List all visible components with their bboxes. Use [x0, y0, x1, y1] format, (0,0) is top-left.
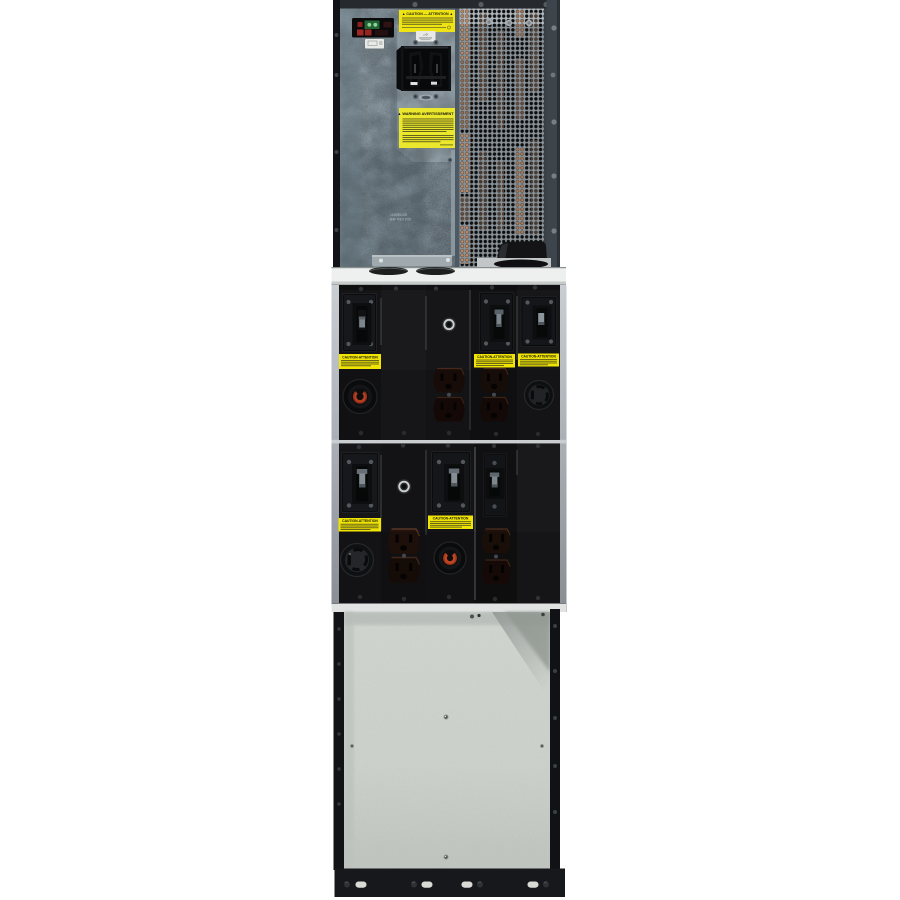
svg-text:▲ WARNING AVERTISSEMENT ▲: ▲ WARNING AVERTISSEMENT ▲ — [398, 112, 459, 116]
svg-text:CAUTION-ATTENTION: CAUTION-ATTENTION — [342, 355, 378, 359]
svg-text:CAUTION-ATTENTION: CAUTION-ATTENTION — [342, 519, 378, 523]
svg-text:▲ CAUTION — ATTENTION ▲: ▲ CAUTION — ATTENTION ▲ — [402, 12, 453, 16]
svg-text:115085108: 115085108 — [390, 213, 407, 217]
svg-text:△⚙: △⚙ — [423, 33, 428, 37]
svg-text:CAUTION-ATTENTION: CAUTION-ATTENTION — [477, 355, 512, 359]
svg-text:B4F REV F20: B4F REV F20 — [390, 218, 411, 222]
svg-text:CAUTION-ATTENTION: CAUTION-ATTENTION — [433, 517, 469, 521]
svg-text:CAUTION-ATTENTION: CAUTION-ATTENTION — [521, 355, 556, 359]
